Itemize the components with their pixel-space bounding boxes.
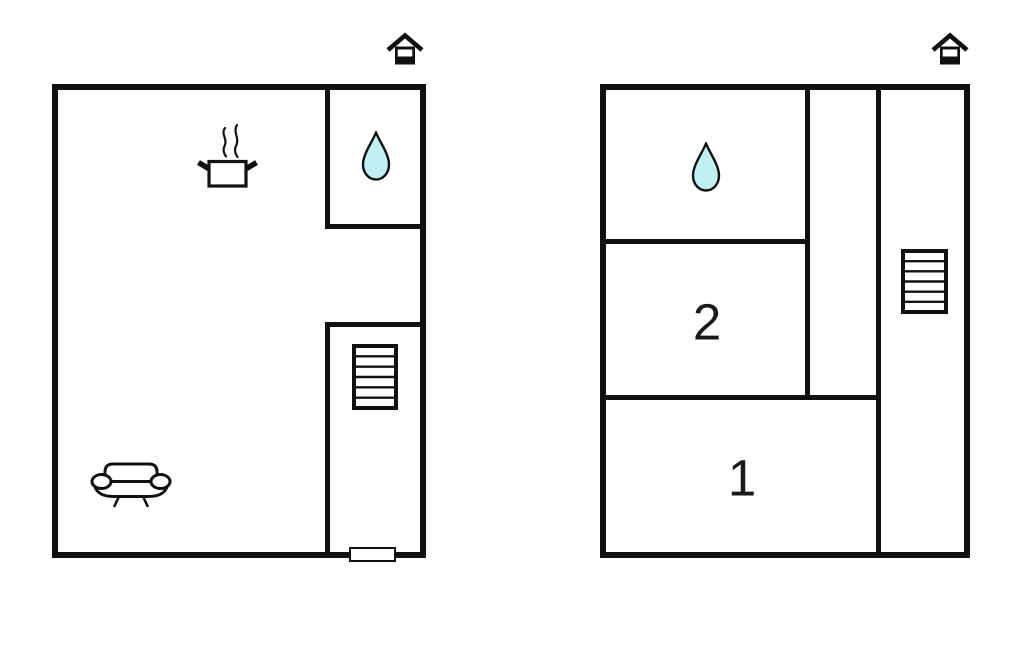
house-icon xyxy=(930,32,970,70)
floorplan-canvas: 2 1 xyxy=(0,0,1024,652)
room-label-1: 1 xyxy=(728,453,756,504)
floorplan-ground xyxy=(0,0,512,652)
stairs-icon xyxy=(901,249,948,314)
interior-wall-corridor-top xyxy=(325,322,426,327)
cooking-pot-icon xyxy=(194,120,264,190)
outer-wall xyxy=(600,84,970,558)
interior-wall-bathroom-vertical xyxy=(325,84,330,229)
interior-wall-corridor-vertical xyxy=(325,322,330,558)
interior-wall-room1-top xyxy=(600,395,881,400)
interior-wall-bathroom-bottom xyxy=(325,224,426,229)
door-opening xyxy=(349,547,396,562)
house-icon xyxy=(385,32,425,70)
interior-wall-right-vertical xyxy=(876,84,881,558)
water-drop-icon xyxy=(691,142,721,193)
interior-wall-bathroom-bottom xyxy=(600,239,810,244)
floorplan-upper: 2 1 xyxy=(512,0,1024,652)
sofa-icon xyxy=(90,460,172,510)
room-label-2: 2 xyxy=(693,297,721,348)
water-drop-icon xyxy=(361,131,391,182)
stairs-icon xyxy=(352,344,398,410)
